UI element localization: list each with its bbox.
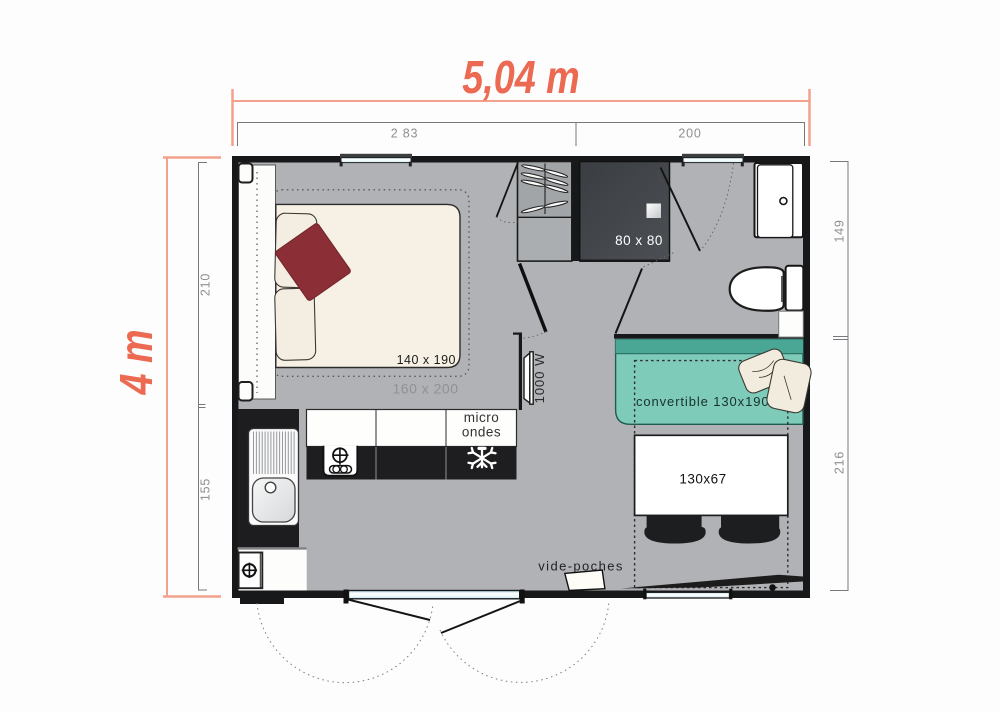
svg-text:130x67: 130x67 xyxy=(679,472,726,487)
svg-text:200: 200 xyxy=(678,127,701,141)
svg-text:4 m: 4 m xyxy=(110,330,161,396)
svg-text:216: 216 xyxy=(833,451,847,474)
svg-text:140 x 190: 140 x 190 xyxy=(397,353,456,367)
svg-text:2 83: 2 83 xyxy=(391,127,419,141)
svg-text:80 x 80: 80 x 80 xyxy=(615,233,663,248)
svg-text:1000 W: 1000 W xyxy=(532,353,547,404)
svg-text:210: 210 xyxy=(199,273,213,296)
svg-text:149: 149 xyxy=(833,219,847,242)
svg-text:ondes: ondes xyxy=(462,425,501,440)
svg-text:160 x 200: 160 x 200 xyxy=(393,381,459,397)
svg-text:convertible 130x190: convertible 130x190 xyxy=(636,394,769,409)
svg-text:155: 155 xyxy=(199,478,213,501)
svg-text:5,04 m: 5,04 m xyxy=(462,51,579,102)
svg-text:micro: micro xyxy=(464,410,500,425)
